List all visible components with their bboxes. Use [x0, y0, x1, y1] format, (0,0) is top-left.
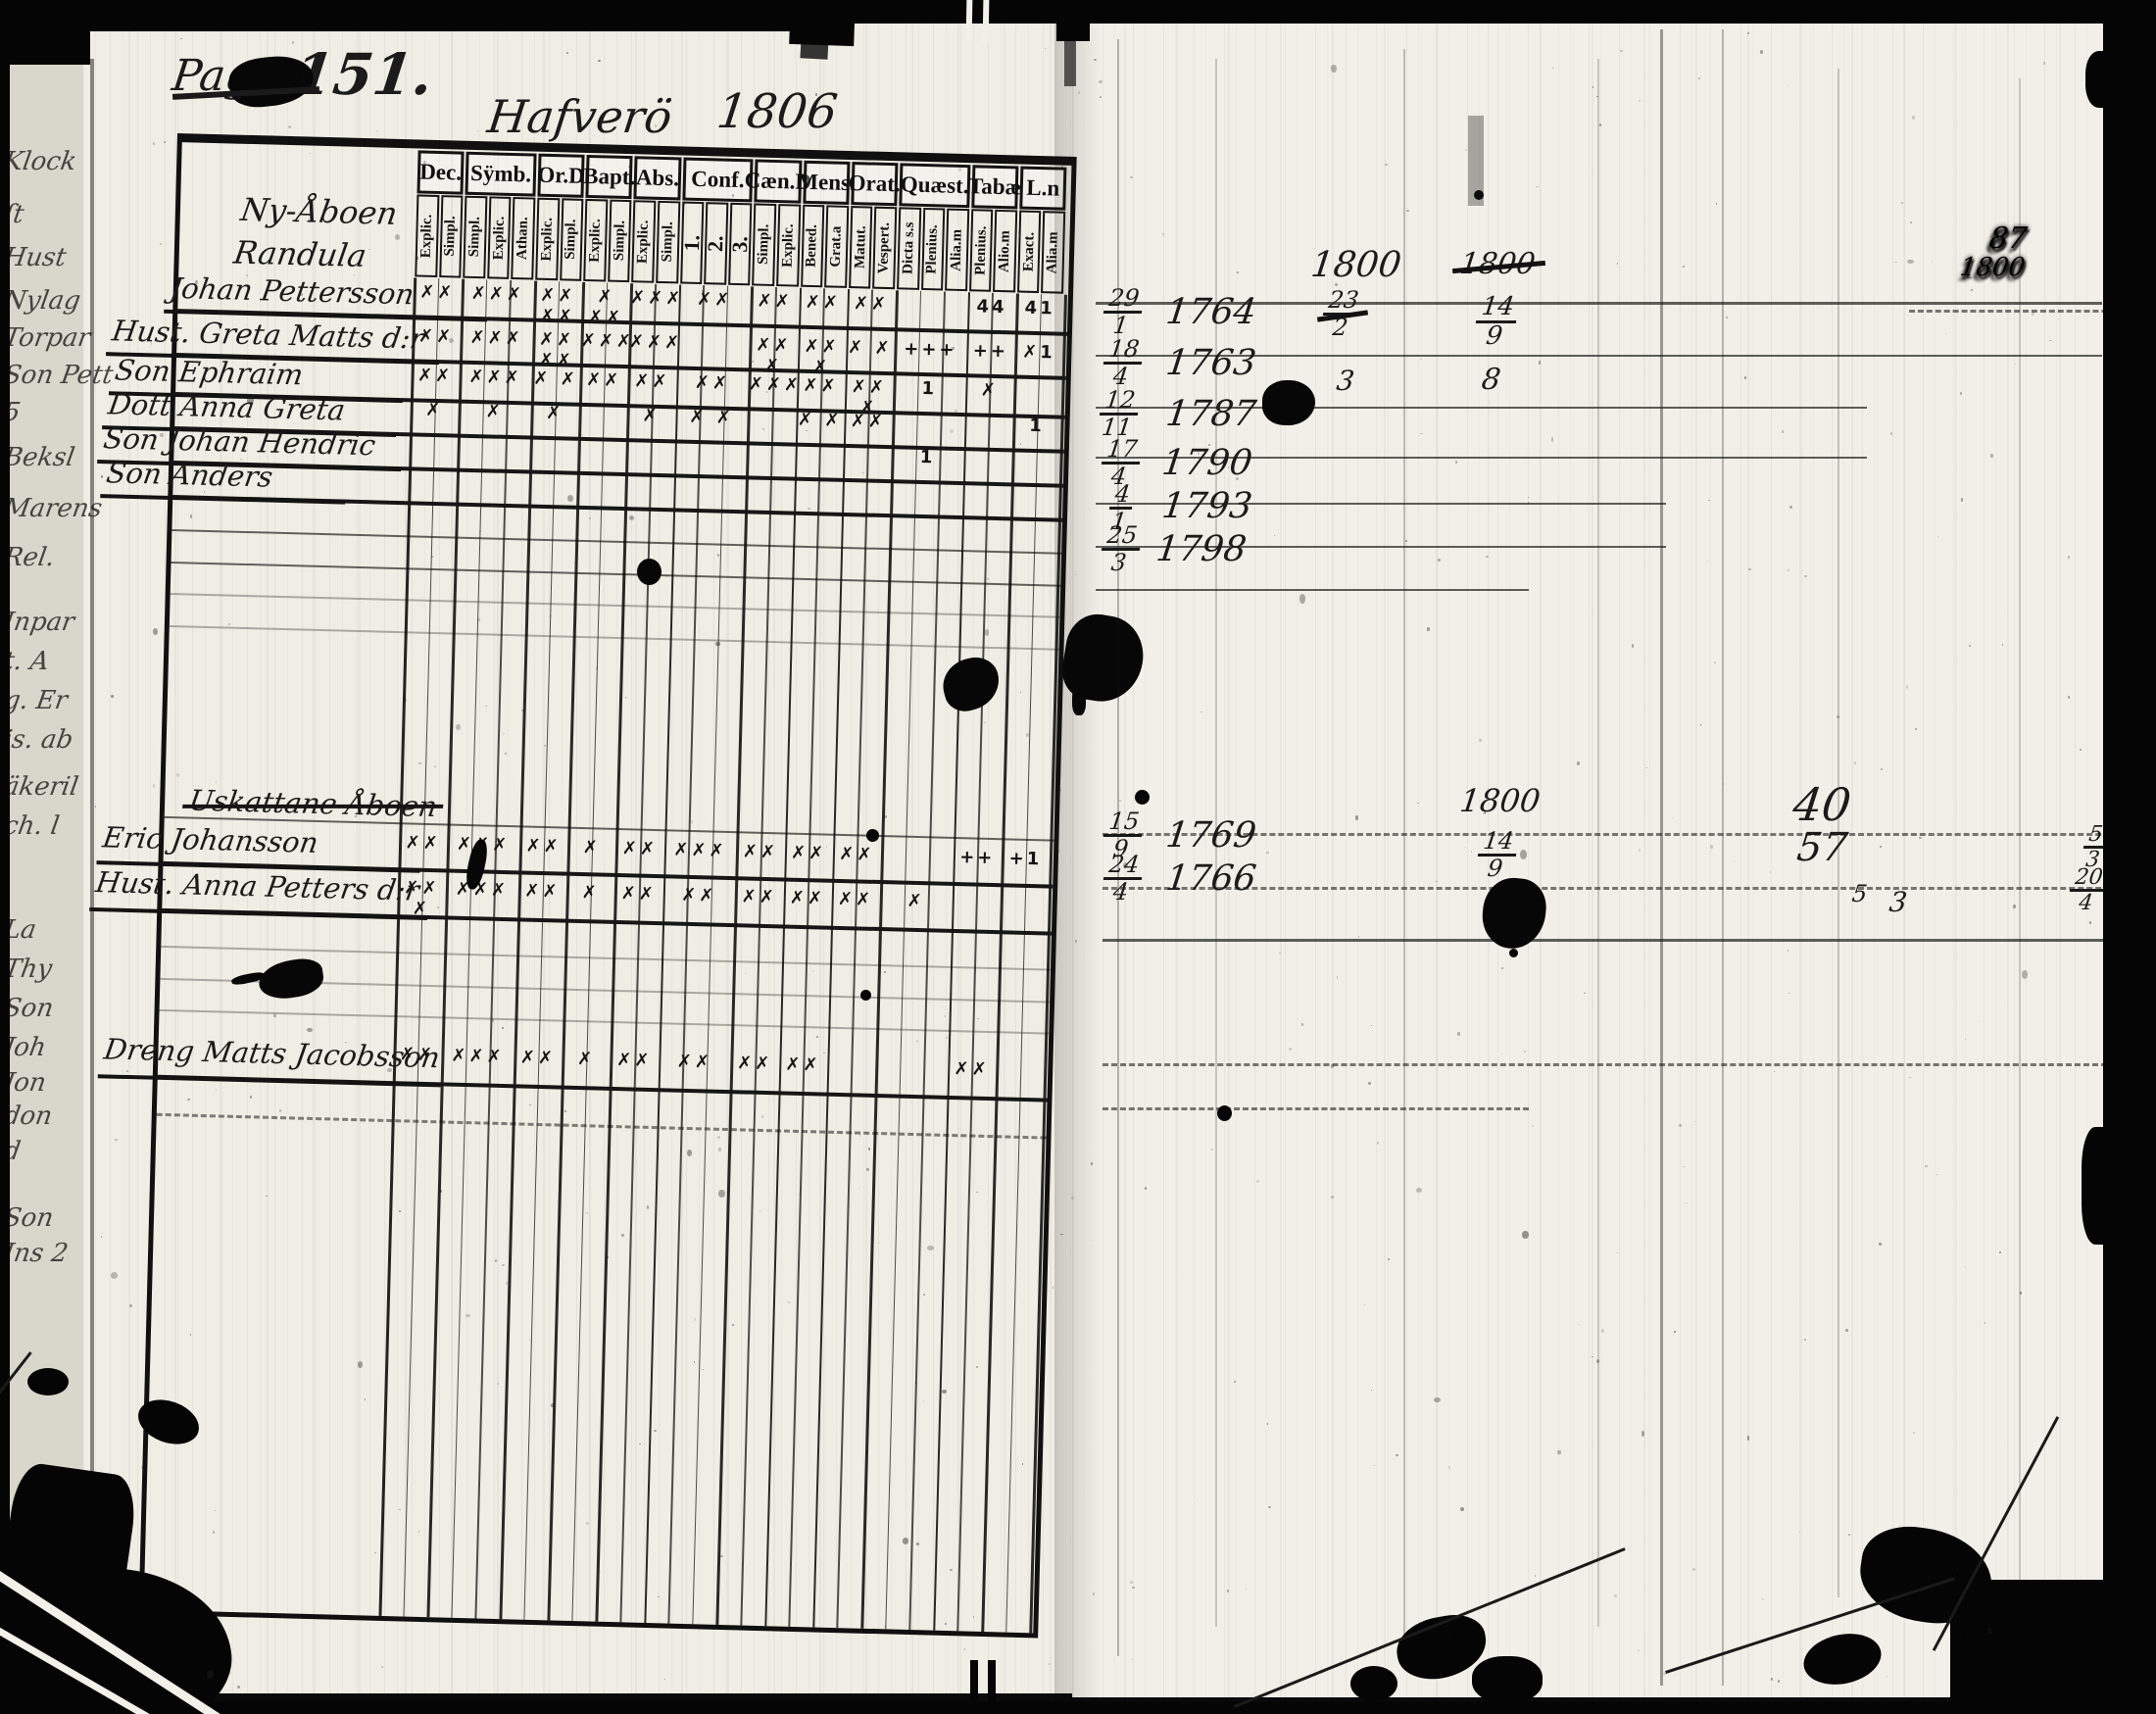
attendance-marks: ✗✗: [678, 288, 751, 311]
speck: [1522, 1231, 1529, 1240]
speck: [387, 1068, 392, 1071]
sub-header-label: Simpl.: [612, 220, 627, 262]
speck: [1782, 430, 1784, 432]
speck: [478, 618, 480, 621]
fold-line: [1722, 29, 1724, 1686]
speck: [691, 820, 692, 822]
person-name: Son Ephraim: [113, 353, 306, 391]
sub-header-label: Simpl.: [467, 217, 483, 258]
speck: [228, 623, 230, 624]
sub-header: Simpl.: [463, 196, 487, 279]
attendance-marks: ✗✗: [614, 883, 663, 905]
speck: [1774, 1071, 1775, 1072]
person-name: Eric Johansson: [101, 820, 320, 859]
corner-damage: [1472, 1656, 1543, 1703]
speck: [449, 338, 454, 343]
header-group: Abs.Explic.Simpl.: [631, 154, 683, 284]
column-header: L.n: [1019, 167, 1066, 211]
speck: [987, 578, 989, 580]
column-header: Bapt.: [586, 155, 633, 199]
sub-headers: Exact.Alia.m: [1016, 209, 1066, 294]
person-name: Son Anders: [104, 456, 274, 493]
speck: [1236, 477, 1239, 480]
attendance-marks: ++: [953, 847, 1002, 868]
header-group: Sÿmb.Simpl.Explic.Athan.: [462, 150, 537, 281]
speck: [111, 1272, 118, 1278]
speck: [1620, 50, 1622, 52]
header-group: L.nExact.Alia.m: [1016, 165, 1068, 295]
attendance-marks: ✗✗: [751, 290, 800, 312]
date-numerator: 17: [1102, 437, 1143, 465]
speck: [1692, 1568, 1695, 1571]
speck: [211, 302, 213, 303]
speck: [952, 347, 955, 349]
paper-streak: [2019, 78, 2021, 1588]
sub-header: Explic.: [632, 200, 657, 283]
speck: [1479, 739, 1481, 742]
corner-damage: [27, 1368, 69, 1396]
speck: [868, 1148, 870, 1151]
attendance-marks: ✗✗: [412, 325, 461, 347]
corner-damage: [1950, 1580, 2156, 1714]
sub-header-label: Alio.m: [998, 229, 1013, 271]
speck: [1614, 1594, 1616, 1597]
speck: [1197, 1499, 1198, 1500]
ruled-line: [1102, 1063, 2107, 1066]
attendance-marks: ✗✗: [393, 1044, 442, 1065]
binding-thread: [983, 0, 990, 43]
speck: [187, 1099, 189, 1101]
speck: [732, 1324, 734, 1325]
attendance-marks: ✗✗: [783, 887, 832, 908]
sub-header: Explic.: [776, 204, 801, 287]
sub-header: 3.: [728, 203, 753, 286]
column-header: Tabæ: [971, 165, 1018, 209]
page-edge-line: [90, 59, 94, 1588]
attendance-marks: ✗✗: [797, 375, 846, 397]
speck: [1377, 1142, 1379, 1144]
speck: [1906, 685, 1908, 688]
table-header: Ny-Åboen Randula Dec.Explic.Simpl.Sÿmb.S…: [178, 142, 1071, 295]
handwritten-date: 149: [1472, 294, 1519, 351]
speck: [1020, 443, 1021, 444]
speck: [437, 906, 439, 908]
speck: [365, 1398, 367, 1400]
sub-header-label: Simpl.: [443, 217, 459, 258]
speck: [1123, 862, 1128, 868]
attendance-marks: ✗✗✗: [749, 373, 798, 395]
speck: [1331, 65, 1337, 73]
sub-header-label: Matut.: [853, 225, 868, 269]
speck: [266, 1196, 268, 1197]
speck: [2032, 312, 2034, 316]
speck: [1641, 1431, 1645, 1437]
sub-header: Simpl.: [560, 198, 584, 281]
margin-fragment: Ins 2: [2, 1239, 71, 1268]
speck: [1837, 715, 1838, 717]
speck: [111, 695, 114, 698]
column-header: Mens.: [803, 161, 850, 205]
attendance-marks: ✗✗: [579, 369, 628, 391]
sub-header-label: 1.: [681, 234, 703, 251]
speck: [1734, 861, 1735, 862]
attendance-marks: ✗✗: [414, 281, 463, 303]
header-group: Or.DExplic.Simpl.: [534, 152, 586, 282]
speck: [292, 41, 295, 44]
speck: [1936, 1174, 1937, 1175]
attendance-marks: ✗: [965, 379, 1014, 401]
speck: [273, 1014, 276, 1016]
speck: [270, 135, 273, 137]
ink-blot: [637, 559, 661, 585]
handwritten-date: 149: [1475, 829, 1519, 881]
date-denominator: 4: [1101, 880, 1142, 905]
attendance-marks: ✗✗: [844, 411, 893, 432]
scan-edge-left: [0, 0, 10, 1714]
attendance-marks: ✗ ✗: [675, 406, 748, 428]
header-group: Mens.Bened.Grat.a: [800, 159, 852, 289]
speck: [816, 1036, 818, 1038]
margin-fragment: Klock: [2, 147, 78, 176]
speck: [694, 1318, 696, 1322]
speck: [176, 773, 178, 777]
speck: [718, 1148, 721, 1151]
speck: [1694, 1121, 1695, 1122]
speck: [586, 1212, 587, 1214]
speck: [465, 1314, 470, 1318]
handwritten-date: 244: [1101, 853, 1145, 905]
speck: [2013, 905, 2016, 908]
speck: [1913, 1432, 1915, 1434]
speck: [1663, 1673, 1665, 1675]
attendance-marks: ✗✗: [831, 889, 880, 910]
speck: [2089, 921, 2091, 924]
speck: [153, 142, 155, 144]
attendance-marks: ✗✗ ✗: [397, 877, 446, 919]
speck: [567, 495, 573, 502]
speck: [788, 1301, 790, 1302]
date-denominator: 4: [2067, 892, 2105, 914]
speck: [1788, 993, 1789, 994]
sub-header-label: Explic.: [588, 219, 604, 263]
scan-edge-blob: [2085, 51, 2119, 108]
speck: [246, 274, 247, 275]
scan-edge-bottom: [0, 1701, 2156, 1714]
attendance-marks: ✗✗✗: [460, 367, 532, 389]
scan-edge-top: [1056, 0, 1090, 41]
scan-edge-blob: [2082, 1127, 2121, 1245]
attendance-marks: 44: [967, 296, 1016, 318]
speck: [1434, 1397, 1441, 1402]
attendance-marks: ✗ ✗: [796, 410, 845, 431]
sub-header: Dicta s.s: [897, 207, 921, 290]
sub-headers: 1.2.3.: [679, 200, 754, 286]
speck: [915, 1382, 917, 1384]
speck: [439, 1190, 442, 1193]
name-header-line2: Randula: [231, 234, 369, 274]
speck: [1045, 48, 1046, 49]
ledger-scan: Pag. 151. Hafverö 1806 Ny-Åboen Randula …: [0, 0, 2156, 1714]
speck: [374, 1552, 375, 1553]
attendance-marks: ✗ ✗: [531, 368, 580, 390]
speck: [502, 1027, 504, 1029]
speck: [250, 1096, 253, 1099]
speck: [431, 556, 433, 557]
speck: [1778, 1680, 1780, 1683]
person-name: Johan Pettersson: [168, 271, 416, 311]
date-denominator: 9: [1472, 323, 1515, 350]
scan-edge-top: [0, 0, 813, 31]
header-group: Dec.Explic.Simpl.: [414, 148, 465, 278]
speck: [1673, 817, 1674, 819]
sub-header-label: Plenius.: [973, 225, 989, 275]
speck: [216, 781, 217, 783]
date-numerator: 25: [1102, 523, 1143, 551]
handwritten-note: 1800: [1958, 253, 2027, 282]
attendance-marks: ✗✗: [411, 365, 460, 386]
speck: [720, 1555, 723, 1557]
margin-fragment: Inpar: [2, 608, 76, 637]
margin-fragment: g. Er: [2, 686, 70, 715]
speck: [1521, 804, 1523, 807]
ruled-line: [1102, 887, 2136, 890]
attendance-marks: ✗✗: [615, 838, 664, 859]
speck: [1364, 1304, 1365, 1305]
speck: [1438, 559, 1441, 563]
sub-header-label: Explic.: [540, 217, 556, 261]
speck: [1331, 1196, 1333, 1199]
speck: [1289, 1048, 1291, 1051]
speck: [923, 1294, 925, 1296]
speck: [1698, 77, 1700, 79]
ruled-line: [1096, 589, 1529, 591]
sub-header: Alia.m: [945, 209, 969, 292]
speck: [1210, 1149, 1212, 1151]
attendance-marks: ✗✗: [399, 832, 448, 854]
speck: [1551, 437, 1554, 441]
examination-table: Ny-Åboen Randula Dec.Explic.Simpl.Sÿmb.S…: [138, 133, 1076, 1639]
speck: [551, 1403, 554, 1407]
speck: [1145, 1187, 1148, 1189]
sub-header-label: Alia.m: [949, 228, 964, 270]
speck: [586, 1522, 588, 1525]
speck: [1246, 1589, 1247, 1590]
sub-header-label: Plenius.: [925, 224, 941, 274]
ink-spot: [1217, 1105, 1232, 1121]
speck: [1331, 1064, 1333, 1067]
speck: [878, 1243, 879, 1244]
speck: [812, 1613, 815, 1615]
speck: [1909, 1077, 1911, 1078]
speck: [160, 433, 164, 437]
sub-header: Grat.a: [824, 205, 849, 288]
handwritten-note: 87: [1987, 221, 2029, 256]
attendance-marks: 41: [1015, 297, 1064, 318]
attendance-marks: ✗✗✗: [581, 330, 630, 352]
speck: [502, 1264, 505, 1266]
speck: [1915, 728, 1917, 729]
speck: [1228, 466, 1230, 468]
speck: [345, 1042, 346, 1044]
attendance-marks: +++: [894, 338, 966, 361]
paper-streak: [1403, 49, 1405, 1637]
date-numerator: 14: [1478, 829, 1519, 857]
ink-spot: [860, 990, 871, 1001]
speck: [1078, 91, 1080, 94]
date-numerator: 15: [1103, 809, 1145, 837]
speck: [865, 1451, 867, 1453]
sub-header-label: Alia.m: [1046, 231, 1061, 273]
ink-blot: [1072, 686, 1086, 715]
sub-headers: Bened.Grat.a: [800, 204, 850, 289]
corner-damage: [1350, 1666, 1397, 1701]
sub-header: Alia.m: [1042, 211, 1066, 294]
scan-edge-top: [789, 0, 856, 46]
speck: [1208, 444, 1210, 446]
handwritten-date: 204: [2067, 866, 2108, 914]
speck: [279, 1109, 281, 1112]
speck: [1747, 32, 1748, 34]
handwritten-note: 1763: [1163, 343, 1258, 383]
binding-thread: [966, 0, 973, 39]
person-name: Son Johan Hendric: [101, 421, 377, 462]
speck: [1132, 1587, 1134, 1589]
speck: [1679, 1124, 1682, 1127]
attendance-marks: ✗✗: [735, 886, 784, 907]
speck: [964, 1648, 965, 1650]
attendance-marks: 1: [893, 377, 965, 400]
sub-headers: Dicta s.sPlenius.Alia.m: [896, 206, 970, 292]
sub-header: Simpl.: [608, 200, 632, 283]
header-group: Cæn.DSimpl.Explic.: [751, 157, 803, 287]
speck: [1674, 1331, 1676, 1333]
attendance-marks: ✗: [530, 403, 579, 424]
ink-spot: [1135, 790, 1150, 805]
speck: [976, 1366, 977, 1368]
attendance-marks: ✗✗: [611, 1050, 660, 1071]
row-rule: [160, 1009, 1050, 1035]
scan-edge-right: [2103, 0, 2156, 1714]
attendance-marks: ✗: [562, 1049, 611, 1070]
speck: [1960, 392, 1962, 394]
attendance-marks: ✗: [566, 882, 615, 904]
stain: [1468, 116, 1484, 206]
binding-mark: [970, 1660, 978, 1714]
handwritten-note: 1787: [1163, 394, 1258, 434]
margin-fragment: Son Pett: [2, 361, 116, 390]
column-header: Dec.: [416, 150, 464, 194]
sub-header-label: 3.: [729, 236, 751, 253]
speck: [1788, 85, 1788, 86]
sub-header: Matut.: [849, 206, 873, 289]
sub-header: Vespert.: [872, 207, 897, 290]
handwritten-date: 184: [1101, 337, 1145, 389]
speck: [1189, 317, 1191, 318]
handwritten-date: 253: [1099, 523, 1143, 575]
speck: [101, 1236, 102, 1237]
speck: [1601, 1329, 1604, 1333]
speck: [1596, 1359, 1599, 1363]
sub-header: Exact.: [1017, 211, 1042, 294]
margin-fragment: Hust: [2, 243, 69, 272]
sub-headers: Matut.Vespert.: [848, 205, 898, 290]
speck: [492, 1019, 494, 1022]
speck: [1061, 166, 1063, 168]
sub-headers: Simpl.Explic.: [751, 202, 801, 287]
ink-blot: [1509, 949, 1518, 957]
speck: [195, 280, 198, 284]
speck: [1358, 936, 1359, 938]
speck: [752, 361, 755, 363]
speck: [1198, 452, 1200, 455]
speck: [237, 1686, 240, 1689]
speck: [1524, 1051, 1526, 1053]
speck: [727, 1196, 728, 1197]
column-header: Or.D: [537, 154, 584, 198]
handwritten-note: 1800: [1308, 245, 1403, 285]
year-title: 1806: [714, 84, 841, 139]
speck: [221, 891, 223, 893]
speck: [1919, 837, 1921, 839]
sub-header: Explic.: [487, 196, 512, 279]
sub-header-label: Grat.a: [829, 225, 845, 267]
speck: [1788, 569, 1789, 571]
sub-header-label: Dicta s.s: [901, 222, 916, 275]
sub-headers: Explic.Simpl.: [414, 193, 464, 278]
speck: [1881, 768, 1883, 769]
header-group: Conf.1.2.3.: [679, 155, 755, 286]
paper-streak: [1597, 59, 1599, 1627]
table-body: Johan Pettersson✗✗✗✗✗✗✗ ✗✗✗ ✗✗✗✗✗✗✗✗✗✗✗✗…: [144, 271, 1068, 1633]
header-group: Orat.Matut.Vespert.: [848, 160, 900, 290]
margin-fragment: Beksl: [2, 443, 77, 472]
speck: [1075, 574, 1076, 575]
speck: [1355, 815, 1358, 819]
speck: [629, 515, 634, 520]
sub-header: Explic.: [535, 198, 560, 281]
attendance-marks: ✗✗: [730, 1053, 779, 1074]
speck: [647, 1205, 650, 1209]
sub-header: Athan.: [512, 197, 536, 280]
speck: [903, 1538, 908, 1543]
place-title: Hafverö: [485, 90, 675, 143]
margin-fragment: Torpar: [2, 323, 93, 353]
attendance-marks: ✗✗✗: [462, 283, 534, 306]
header-group: TabæPlenius.Alio.m: [968, 163, 1020, 293]
paper-streak: [1117, 39, 1119, 1656]
attendance-marks: ✗1: [1014, 341, 1063, 363]
row-rule: [170, 625, 1059, 651]
speck: [1639, 849, 1641, 851]
sub-headers: Explic.Simpl.: [582, 198, 632, 283]
speck: [503, 733, 505, 735]
attendance-marks: ✗✗: [659, 1051, 731, 1073]
speck: [687, 1150, 692, 1156]
attendance-marks: ✗✗: [779, 1053, 828, 1075]
speck: [625, 697, 626, 699]
attendance-marks: ✗✗: [799, 292, 848, 314]
speck: [2014, 1580, 2015, 1581]
speck: [628, 166, 630, 168]
speck: [1854, 761, 1856, 764]
sub-header-label: Vespert.: [877, 222, 893, 274]
margin-fragment: äkeril: [2, 772, 80, 802]
sub-header: 1.: [680, 202, 705, 285]
speck: [1417, 803, 1418, 804]
previous-page-margin: [0, 39, 84, 1666]
sub-header-label: Explic.: [636, 220, 652, 264]
margin-fragment: ch. l: [2, 811, 62, 841]
